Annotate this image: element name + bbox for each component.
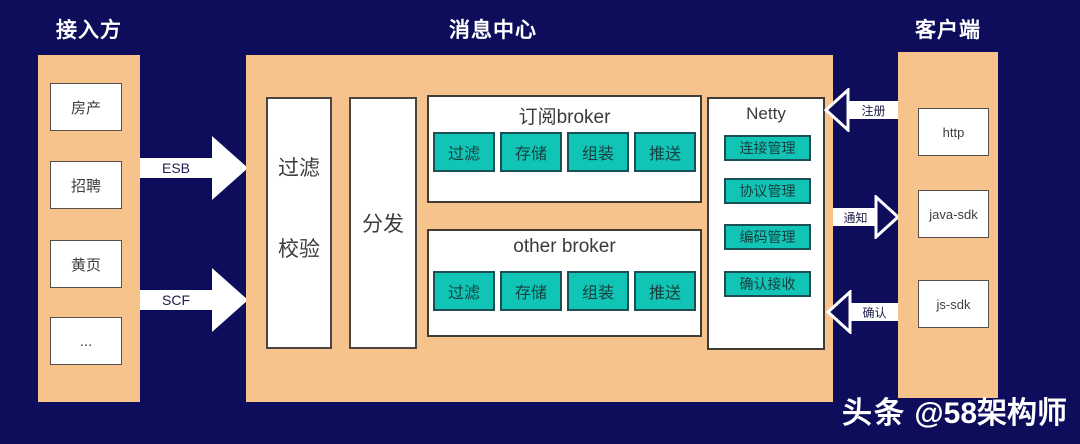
esb-arrow-label: ESB (140, 158, 212, 178)
access-section-title: 接入方 (38, 14, 140, 44)
access-item-more: ... (50, 317, 122, 365)
scf-arrow-label: SCF (140, 290, 212, 310)
watermark: 头条 @58架构师 (842, 388, 1067, 432)
register-arrow-label: 注册 (847, 101, 900, 119)
notify-arrow-label: 通知 (833, 208, 878, 226)
netty-encoding-mgmt: 编码管理 (724, 224, 811, 250)
netty-ack-receive: 确认接收 (724, 271, 811, 297)
filter-validate-column: 过滤 校验 (266, 97, 332, 349)
other-broker-title: other broker (429, 236, 700, 258)
broker1-step-store: 存储 (500, 132, 562, 172)
broker2-step-store: 存储 (500, 271, 562, 311)
broker2-step-push: 推送 (634, 271, 696, 311)
access-item-house: 房产 (50, 83, 122, 131)
filter-label: 过滤 (268, 155, 330, 183)
architecture-diagram: 接入方 消息中心 客户端 房产 招聘 黄页 ... ESB SCF 过滤 校验 … (0, 0, 1080, 444)
validate-label: 校验 (268, 236, 330, 264)
broker1-step-assemble: 组装 (567, 132, 629, 172)
message-center-panel: 过滤 校验 分发 订阅broker 过滤 存储 组装 推送 other brok… (246, 55, 833, 402)
esb-arrow-head-icon (212, 136, 248, 200)
ack-arrow: 确认 (826, 290, 900, 334)
broker2-step-filter: 过滤 (433, 271, 495, 311)
scf-arrow-head-icon (212, 268, 248, 332)
netty-protocol-mgmt: 协议管理 (724, 178, 811, 204)
client-item-js-sdk: js-sdk (918, 280, 989, 328)
ack-arrow-label: 确认 (849, 303, 900, 321)
message-center-section-title: 消息中心 (393, 14, 593, 44)
broker1-step-push: 推送 (634, 132, 696, 172)
subscribe-broker-title: 订阅broker (429, 102, 700, 129)
broker2-step-assemble: 组装 (567, 271, 629, 311)
client-item-http: http (918, 108, 989, 156)
subscribe-broker-box: 订阅broker 过滤 存储 组装 推送 (427, 95, 702, 203)
notify-arrow: 通知 (833, 195, 900, 239)
dispatch-column: 分发 (349, 97, 417, 349)
access-item-yellowpages: 黄页 (50, 240, 122, 288)
netty-title: Netty (709, 104, 823, 124)
access-item-jobs: 招聘 (50, 161, 122, 209)
access-panel: 房产 招聘 黄页 ... (38, 55, 140, 402)
client-section-title: 客户端 (898, 14, 998, 44)
watermark-handle: @58架构师 (914, 397, 1067, 430)
broker1-step-filter: 过滤 (433, 132, 495, 172)
esb-arrow: ESB (140, 136, 248, 200)
scf-arrow: SCF (140, 268, 248, 332)
netty-connection-mgmt: 连接管理 (724, 135, 811, 161)
notify-arrow-head-icon (874, 195, 900, 239)
netty-box: Netty 连接管理 协议管理 编码管理 确认接收 (707, 97, 825, 350)
client-item-java-sdk: java-sdk (918, 190, 989, 238)
other-broker-box: other broker 过滤 存储 组装 推送 (427, 229, 702, 337)
client-panel: http java-sdk js-sdk (898, 52, 998, 398)
register-arrow: 注册 (824, 88, 900, 132)
watermark-brand: 头条 (842, 397, 906, 430)
